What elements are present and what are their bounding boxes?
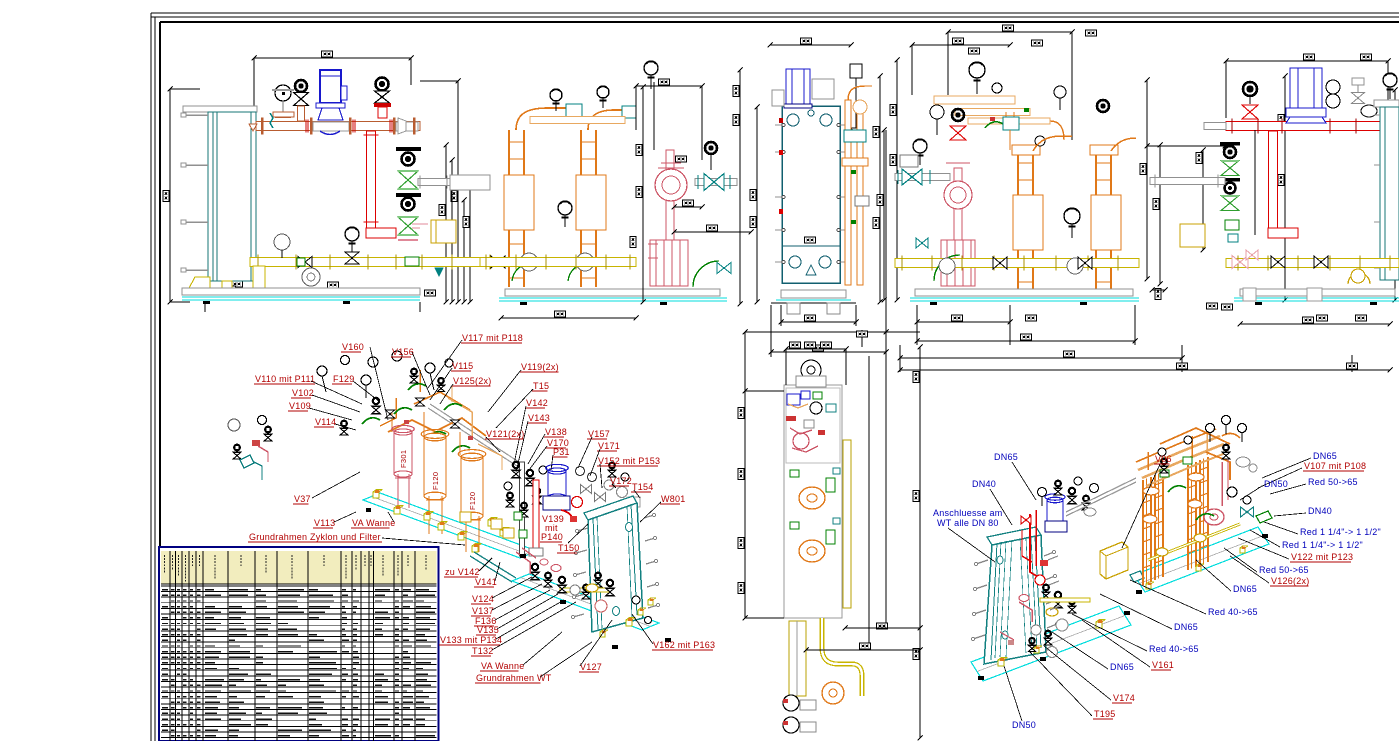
svg-text:T15: T15 bbox=[533, 381, 549, 391]
svg-text:V156: V156 bbox=[392, 347, 414, 357]
svg-text:W801: W801 bbox=[661, 494, 686, 504]
svg-text:Red 50->65: Red 50->65 bbox=[1259, 565, 1309, 575]
svg-text:V110 mit P111: V110 mit P111 bbox=[255, 374, 315, 384]
svg-text:T150: T150 bbox=[558, 543, 580, 553]
svg-text:V162 mit P163: V162 mit P163 bbox=[653, 640, 715, 650]
svg-text:V174: V174 bbox=[1113, 693, 1135, 703]
svg-text:DN50: DN50 bbox=[1012, 720, 1036, 730]
svg-text:V135: V135 bbox=[477, 625, 499, 635]
svg-text:V143: V143 bbox=[528, 413, 550, 423]
svg-text:P31: P31 bbox=[553, 447, 570, 457]
svg-text:F301: F301 bbox=[399, 450, 408, 468]
svg-text:T154: T154 bbox=[632, 482, 654, 492]
svg-text:VA Wanne: VA Wanne bbox=[352, 518, 396, 528]
svg-text:VA Wanne: VA Wanne bbox=[481, 661, 525, 671]
svg-text:F129: F129 bbox=[333, 374, 355, 384]
svg-text:V142: V142 bbox=[526, 398, 548, 408]
svg-text:V137: V137 bbox=[472, 606, 494, 616]
svg-text:DN65: DN65 bbox=[1174, 622, 1198, 632]
svg-text:Red 1 1/4"-> 1 1/2": Red 1 1/4"-> 1 1/2" bbox=[1282, 540, 1363, 550]
svg-text:WT alle DN 80: WT alle DN 80 bbox=[937, 518, 999, 528]
svg-text:Grundrahmen WT: Grundrahmen WT bbox=[476, 673, 552, 683]
svg-text:V141: V141 bbox=[475, 577, 497, 587]
svg-text:V109: V109 bbox=[289, 401, 311, 411]
svg-text:V107 mit P108: V107 mit P108 bbox=[1304, 461, 1366, 471]
svg-text:V172: V172 bbox=[610, 476, 632, 486]
svg-text:V119(2x): V119(2x) bbox=[521, 362, 559, 372]
svg-text:V121(2x): V121(2x) bbox=[486, 429, 525, 439]
svg-text:V102: V102 bbox=[292, 388, 314, 398]
svg-text:V122 mit P123: V122 mit P123 bbox=[1291, 552, 1353, 562]
svg-text:Red 40->65: Red 40->65 bbox=[1208, 607, 1258, 617]
svg-text:T132: T132 bbox=[472, 646, 494, 656]
svg-text:V133 mit P134: V133 mit P134 bbox=[440, 635, 502, 645]
svg-text:DN50: DN50 bbox=[1264, 479, 1288, 489]
svg-text:V127: V127 bbox=[580, 662, 602, 672]
svg-text:Anschluesse am: Anschluesse am bbox=[933, 508, 1003, 518]
svg-text:Red 1 1/4"-> 1 1/2": Red 1 1/4"-> 1 1/2" bbox=[1300, 527, 1381, 537]
svg-text:V124: V124 bbox=[472, 594, 494, 604]
svg-text:V113: V113 bbox=[314, 518, 335, 528]
svg-text:V160: V160 bbox=[342, 342, 364, 352]
svg-text:DN40: DN40 bbox=[1308, 506, 1332, 516]
svg-text:Grundrahmen Zyklon und Filter: Grundrahmen Zyklon und Filter bbox=[249, 532, 381, 542]
svg-text:V171: V171 bbox=[598, 441, 620, 451]
svg-text:V37: V37 bbox=[294, 494, 311, 504]
svg-text:V114: V114 bbox=[315, 417, 336, 427]
svg-text:F120: F120 bbox=[431, 472, 440, 490]
svg-text:V152 mit P153: V152 mit P153 bbox=[598, 456, 660, 466]
svg-text:V157: V157 bbox=[588, 429, 610, 439]
svg-text:DN65: DN65 bbox=[1313, 451, 1337, 461]
svg-text:P140: P140 bbox=[541, 532, 563, 542]
svg-text:Red 50->65: Red 50->65 bbox=[1308, 477, 1358, 487]
svg-text:V06: V06 bbox=[1155, 454, 1172, 464]
svg-text:T195: T195 bbox=[1094, 709, 1116, 719]
svg-text:DN65: DN65 bbox=[1110, 662, 1134, 672]
svg-text:V161: V161 bbox=[1152, 660, 1174, 670]
svg-text:V117 mit P118: V117 mit P118 bbox=[462, 333, 523, 343]
svg-text:zu V142: zu V142 bbox=[445, 567, 480, 577]
svg-text:V126(2x): V126(2x) bbox=[1271, 576, 1310, 586]
svg-text:V138: V138 bbox=[545, 427, 567, 437]
svg-text:F120: F120 bbox=[468, 492, 477, 510]
svg-text:V115: V115 bbox=[452, 361, 473, 371]
svg-text:DN40: DN40 bbox=[972, 479, 996, 489]
svg-text:DN65: DN65 bbox=[994, 452, 1018, 462]
svg-text:V125(2x): V125(2x) bbox=[453, 376, 492, 386]
svg-text:Red 40->65: Red 40->65 bbox=[1149, 644, 1199, 654]
svg-text:DN65: DN65 bbox=[1233, 584, 1257, 594]
